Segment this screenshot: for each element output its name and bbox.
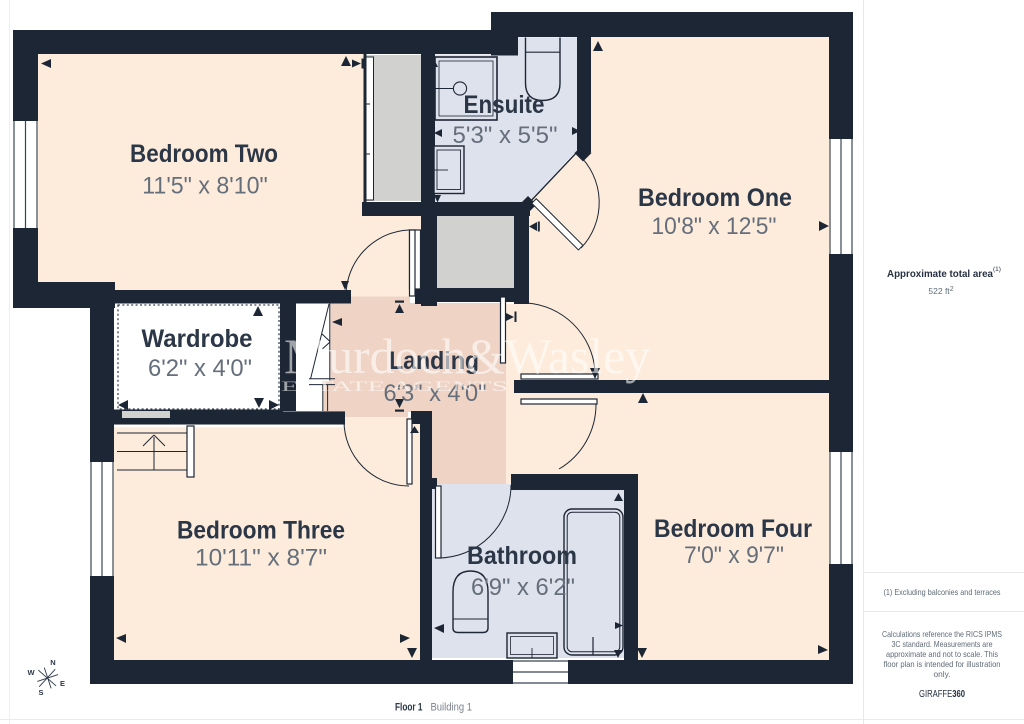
svg-text:GIRAFFE360: GIRAFFE360 <box>919 689 965 700</box>
svg-text:floor plan is intended for ill: floor plan is intended for illustration <box>884 659 1001 669</box>
svg-text:Building 1: Building 1 <box>431 702 473 714</box>
svg-text:5'3" x 5'5": 5'3" x 5'5" <box>453 122 558 149</box>
svg-text:only.: only. <box>934 669 951 679</box>
svg-text:Calculations reference the RIC: Calculations reference the RICS IPMS <box>882 629 1002 639</box>
svg-text:(1): (1) <box>993 266 1001 273</box>
svg-text:10'8" x 12'5": 10'8" x 12'5" <box>652 213 777 240</box>
svg-text:10'11" x 8'7": 10'11" x 8'7" <box>195 545 327 572</box>
svg-text:Approximate total area: Approximate total area <box>887 268 993 280</box>
svg-text:Bedroom Four: Bedroom Four <box>654 515 812 543</box>
svg-text:N: N <box>50 658 55 667</box>
svg-text:E: E <box>60 679 65 688</box>
svg-text:Wardrobe: Wardrobe <box>142 325 253 353</box>
svg-text:ESTATE AGENTS: ESTATE AGENTS <box>281 379 508 395</box>
svg-text:Bedroom Two: Bedroom Two <box>130 140 278 168</box>
svg-text:11'5" x 8'10": 11'5" x 8'10" <box>142 173 268 200</box>
svg-text:approximate and not to scale.: approximate and not to scale. This <box>886 649 998 659</box>
svg-text:Bathroom: Bathroom <box>467 542 577 570</box>
svg-text:7'0" x 9'7": 7'0" x 9'7" <box>684 542 784 569</box>
svg-text:Floor 1: Floor 1 <box>395 702 423 714</box>
svg-text:Bedroom One: Bedroom One <box>638 184 792 212</box>
svg-text:Bedroom Three: Bedroom Three <box>177 517 345 545</box>
svg-text:W: W <box>27 668 35 677</box>
svg-text:S: S <box>38 688 43 697</box>
svg-text:6'2" x 4'0": 6'2" x 4'0" <box>148 355 252 382</box>
svg-text:6'9" x 6'2": 6'9" x 6'2" <box>471 574 575 601</box>
svg-text:Ensuite: Ensuite <box>464 91 545 119</box>
svg-text:(1) Excluding balconies and te: (1) Excluding balconies and terraces <box>884 587 1001 597</box>
svg-text:Murdoch&Wasley: Murdoch&Wasley <box>284 328 650 384</box>
svg-text:3C standard. Measurements are: 3C standard. Measurements are <box>892 639 993 649</box>
